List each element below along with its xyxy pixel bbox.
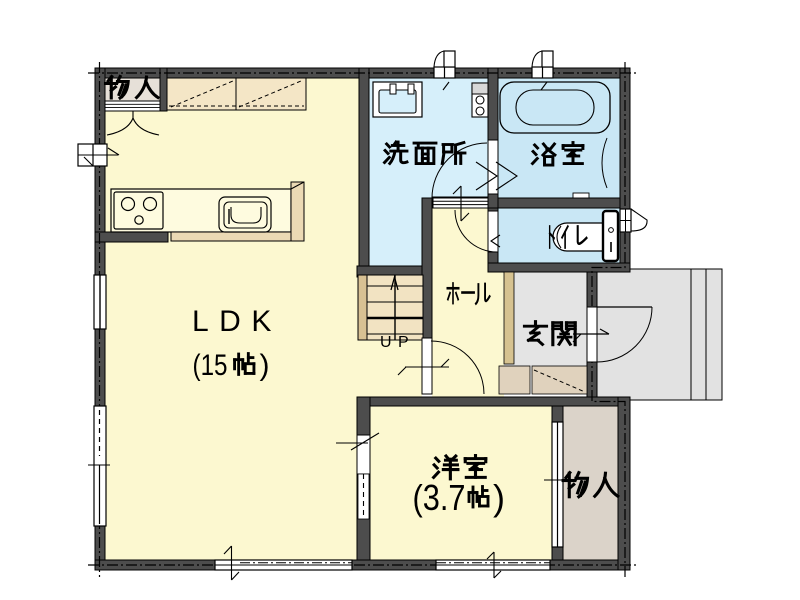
svg-text:(3.7: (3.7 <box>413 477 466 518</box>
svg-text:UP: UP <box>380 334 415 351</box>
svg-text:LDK: LDK <box>192 305 282 338</box>
svg-text:): ) <box>260 349 270 382</box>
svg-text:(15: (15 <box>193 349 228 382</box>
svg-text:): ) <box>493 477 505 518</box>
